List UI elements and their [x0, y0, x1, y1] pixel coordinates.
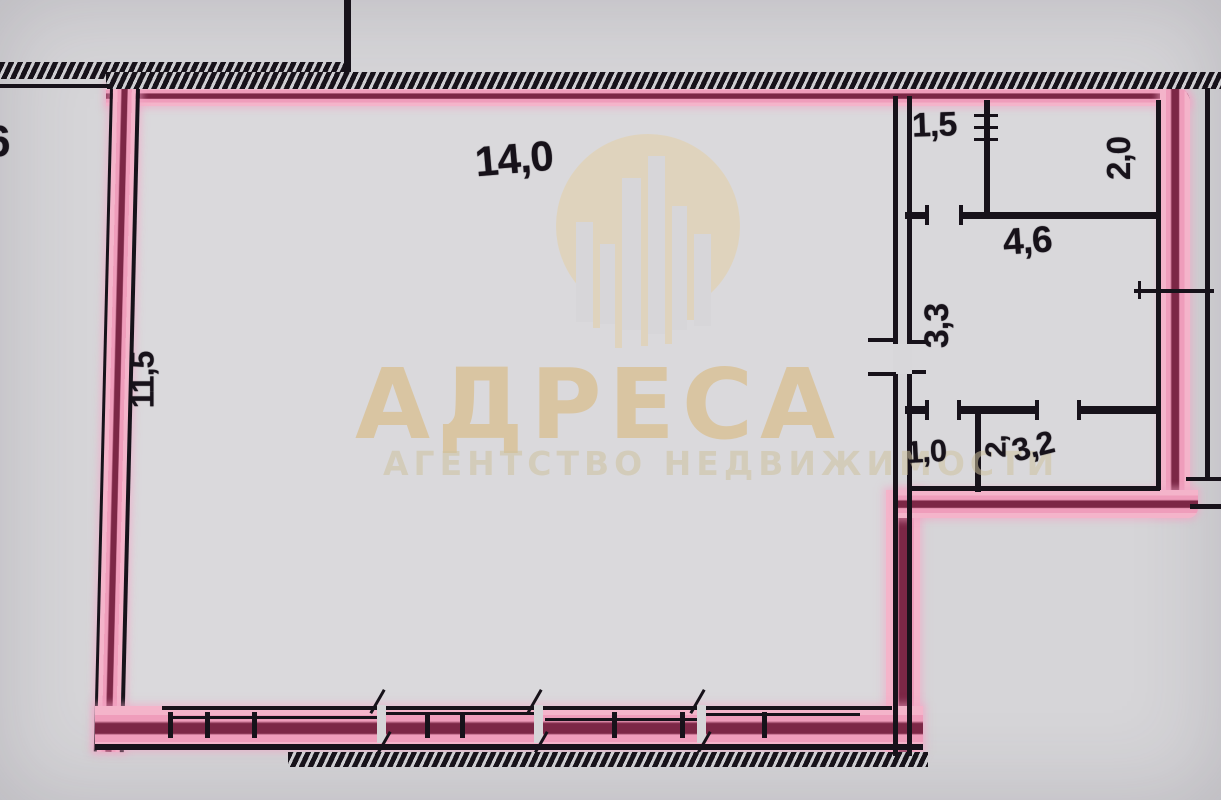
door-tick: [925, 205, 929, 225]
window-tick: [1205, 281, 1208, 299]
window-tick-line: [1134, 289, 1214, 293]
window-tick: [1138, 281, 1141, 299]
window-glazing-line: [170, 716, 378, 719]
door-opening: [928, 406, 958, 414]
adjacent-wall-line-lower-right: [1190, 504, 1221, 509]
window-glazing-line: [545, 718, 698, 721]
window-mullion-tick: [762, 712, 767, 738]
wall-hall-to-bath: [905, 406, 1158, 414]
watermark-subtitle: АГЕНТСТВО НЕДВИЖИМОСТИ: [383, 444, 1059, 483]
room-label-niche-width: 2,0: [1098, 108, 1138, 208]
room-label-kitchen: 4,6: [1002, 220, 1053, 260]
room-label-main-width: 14,0: [473, 135, 554, 184]
door-tick: [868, 372, 896, 376]
room-label-bath-depth: 2,: [980, 410, 1014, 482]
window-mullion-tick: [205, 712, 210, 738]
dimension-break-mark: [529, 690, 547, 756]
door-tick: [868, 338, 896, 342]
bottom-wall-outer-line: [95, 744, 923, 750]
highlight-wall-top: [106, 86, 1190, 106]
window-mullion-tick: [168, 712, 173, 738]
highlight-wing-bottom: [898, 490, 1198, 518]
highlight-wall-right: [1160, 88, 1190, 514]
window-mullion-tick: [612, 712, 617, 738]
room-label-wc: 1,0: [905, 435, 947, 468]
door-tick: [1077, 400, 1081, 420]
exterior-wall-line-left: [0, 84, 112, 88]
vent-tick: [974, 126, 998, 129]
window-mullion-tick: [425, 712, 430, 738]
door-tick: [957, 400, 961, 420]
floor-plan-photo: АДРЕСА АГЕНТСТВО НЕДВИЖИМОСТИ 14,0 11,5 …: [0, 0, 1221, 800]
window-mullion-tick: [460, 712, 465, 738]
room-label-pantry: 1,5: [911, 107, 956, 143]
door-tick: [959, 205, 963, 225]
exterior-wall-hatch-bottom: [288, 752, 928, 767]
dimension-break-mark: [372, 690, 390, 756]
window-mullion-tick: [252, 712, 257, 738]
door-opening: [1038, 406, 1078, 414]
window-mullion-tick: [680, 712, 685, 738]
right-wall-inner-line: [1156, 100, 1161, 490]
room-label-hall-depth: 3,3: [917, 268, 957, 383]
adjacent-wall-line-right: [1186, 477, 1221, 481]
window-glazing-line: [705, 713, 860, 716]
wall-under-pantry: [905, 212, 1158, 219]
room-label-main-depth: 11,5: [124, 322, 160, 437]
exterior-wall-hatch-top: [106, 72, 1221, 89]
highlight-wall-bottom: [95, 706, 923, 750]
wing-rooms-bottom-line: [912, 486, 1160, 491]
dimension-break-mark: [692, 690, 710, 756]
door-opening: [893, 344, 912, 374]
vent-tick: [974, 114, 998, 117]
door-opening: [928, 212, 960, 219]
door-tick: [1035, 400, 1039, 420]
wall-main-to-wing: [893, 96, 912, 756]
door-tick: [925, 400, 929, 420]
vent-tick: [974, 138, 998, 141]
exterior-wall-stub-vertical: [344, 0, 351, 76]
wall-pantry-niche: [984, 100, 990, 218]
edge-clipped-digit: 6: [0, 120, 9, 164]
